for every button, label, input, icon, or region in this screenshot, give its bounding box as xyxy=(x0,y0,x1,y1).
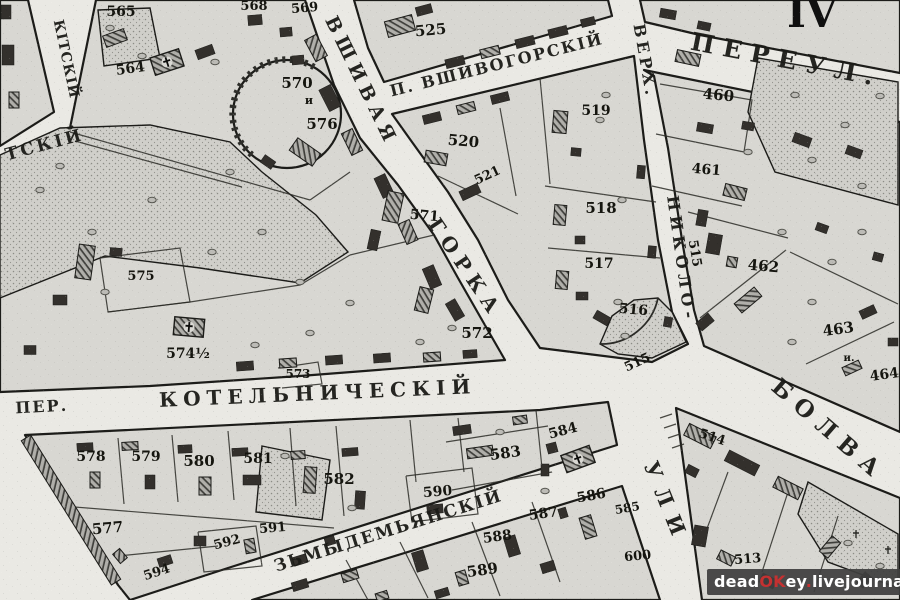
historical-map: ВШИВАЯГОРКАП. ВШИВОГОРСКІЙПЕРЕУЛ.ВЕРХ.НИ… xyxy=(0,0,900,600)
watermark-segment: dead xyxy=(714,572,759,591)
watermark: deadOKey.livejournal.com xyxy=(707,569,900,595)
watermark-segment: OK xyxy=(759,572,785,591)
watermark-segment: livejournal xyxy=(812,572,900,591)
map-canvas: ВШИВАЯГОРКАП. ВШИВОГОРСКІЙПЕРЕУЛ.ВЕРХ.НИ… xyxy=(0,0,900,600)
paper-grain-overlay xyxy=(0,0,900,600)
watermark-segment: ey xyxy=(785,572,805,591)
